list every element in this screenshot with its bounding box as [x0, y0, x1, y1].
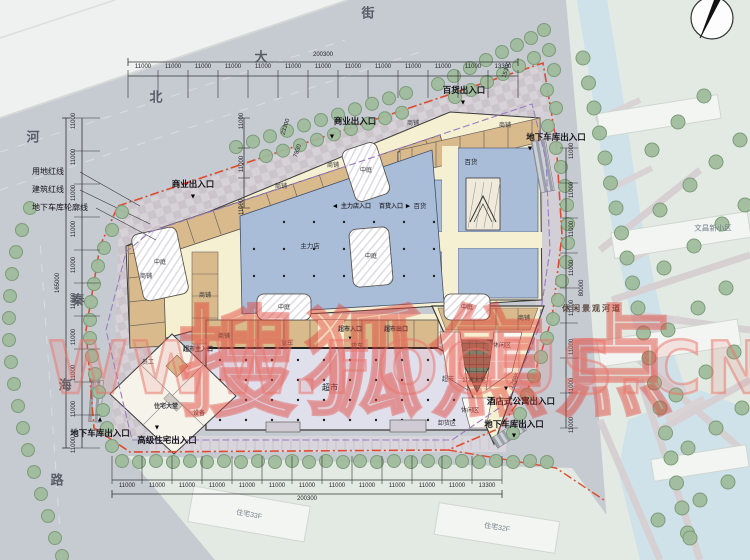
anchor-store-label: 主力店: [300, 244, 320, 251]
garage-entrance-label-sw: 地下车库出入口: [70, 429, 130, 438]
atrium-label-4: 中庭: [278, 305, 290, 311]
arrow-down-icon: ▼: [460, 100, 467, 107]
shop-label-4: 商铺: [499, 123, 511, 129]
supermarket-label-small: 超市: [442, 377, 454, 383]
department-store-entrance-label: 百货出入口: [443, 86, 486, 95]
atrium-label-1: 中庭: [154, 260, 166, 266]
garage-entrance-label-se: 地下车库出入口: [484, 420, 544, 429]
supermarket-main-entrance-label: 超市主入口: [183, 347, 213, 353]
supermarket-out-label: 超市出口: [384, 327, 408, 333]
staff-label: 员工: [142, 360, 154, 366]
supermarket-in-label: 超市入口: [338, 327, 362, 333]
road-char-lu: 路: [50, 474, 63, 487]
road-char-qin: 秦: [71, 294, 84, 307]
department-label-2: 百货: [465, 160, 478, 167]
atrium-label-2: 中庭: [360, 168, 372, 174]
supermarket-label: 超市: [322, 384, 338, 392]
road-char-jie: 街: [361, 7, 374, 20]
dimension-bottom-total: 200300: [297, 496, 317, 502]
atrium-label-3: 中庭: [365, 254, 377, 260]
district-label: 文昌新小区: [694, 224, 732, 232]
shop-label-7: 商铺: [218, 334, 230, 340]
road-char-da: 大: [254, 51, 267, 64]
legend-garage-outline: 地下车库轮廓线: [32, 204, 88, 212]
road-char-he: 河: [26, 131, 39, 144]
arrow-right-icon: ▶: [406, 204, 410, 210]
master-plan-image: 1100011000110001100011000110001100011000…: [0, 0, 750, 560]
shop-label-1: 商铺: [275, 184, 287, 190]
road-char-bei: 北: [149, 91, 162, 104]
dimension-top-total: 200300: [313, 52, 333, 58]
arrow-down-icon: ▼: [329, 134, 336, 141]
commercial-entrance-label-left: 商业出入口: [172, 180, 215, 189]
department-label-1: 百货: [414, 204, 427, 211]
arrow-up-icon: ▲: [97, 417, 104, 424]
truck-label-2: 货车: [351, 344, 363, 350]
leisure-label-2: 休闲区: [493, 343, 511, 349]
road-char-hai: 海: [58, 379, 71, 392]
arrow-down-icon: ▼: [348, 337, 353, 342]
arrow-down-icon: ▼: [511, 433, 518, 440]
arrow-down-icon: ▼: [154, 425, 161, 432]
arrow-down-icon: ▼: [527, 146, 534, 153]
plan-drawing: [0, 0, 750, 560]
equipment-label: 设备: [193, 411, 205, 417]
residence-lobby-label: 住宅大堂: [154, 404, 178, 410]
legend-building-red-line: 建筑红线: [32, 186, 64, 194]
legend-land-red-line: 用地红线: [32, 168, 64, 176]
dimension-col-left: 1100011000110001100011000110001100011000…: [68, 118, 80, 448]
dimension-col-right: 1100011000110001100011000110001100011000: [566, 148, 578, 428]
arrow-down-icon: ▼: [503, 386, 510, 393]
department-entrance-label: 百货入口: [379, 204, 403, 210]
hotel-apartment-entrance-label: 酒店式公寓出入口: [487, 397, 555, 406]
truck-label-1: 货车: [281, 341, 293, 347]
arrow-down-icon: ▼: [190, 194, 197, 201]
garage-entrance-label-ne: 地下车库出入口: [526, 133, 586, 142]
shop-label-8: 商铺: [518, 316, 530, 322]
premium-residence-entrance-label: 高级住宅出入口: [137, 436, 197, 445]
shop-label-6: 商铺: [199, 293, 211, 299]
apartment-lobby-label: 公寓大堂: [462, 378, 486, 384]
dimension-row-top: 1100011000110001100011000110001100011000…: [128, 64, 518, 70]
north-compass-icon: [691, 0, 733, 39]
dimension-right-total: 80000: [579, 280, 585, 297]
commercial-entrance-label-top: 商业出入口: [334, 117, 377, 126]
unloading-label: 卸货区: [438, 421, 456, 427]
leisure-label-1: 休闲区: [461, 408, 479, 414]
anchor-entrance-label: 主力店入口: [341, 204, 371, 210]
dimension-col-left-edge: 110001100011000: [236, 118, 248, 210]
arrow-left-icon: ◀: [333, 204, 337, 210]
river-label: 休闲景观河道: [562, 305, 622, 313]
dimension-left-total: 165000: [55, 273, 61, 293]
shop-label-5: 商铺: [140, 274, 152, 280]
dimension-row-bottom: 1100011000110001100011000110001100011000…: [112, 483, 502, 489]
shop-label-2: 商铺: [327, 163, 339, 169]
shop-label-3: 商铺: [407, 121, 419, 127]
atrium-label-5: 中庭: [461, 305, 473, 311]
